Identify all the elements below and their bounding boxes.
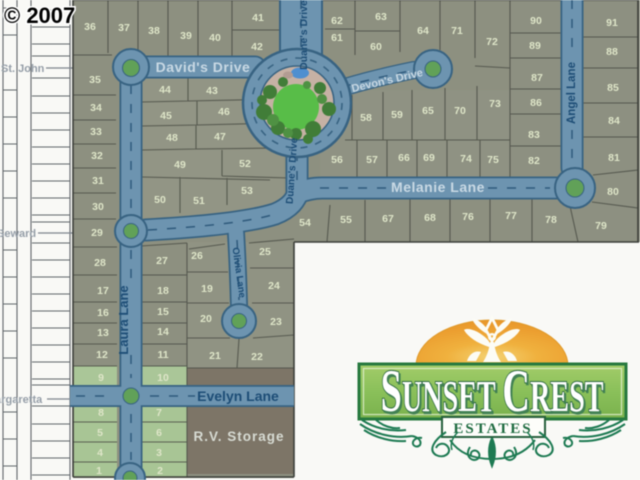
svg-text:30: 30 bbox=[92, 201, 104, 213]
svg-text:43: 43 bbox=[206, 85, 218, 97]
svg-text:79: 79 bbox=[595, 220, 607, 232]
svg-text:1: 1 bbox=[96, 465, 102, 477]
svg-text:28: 28 bbox=[94, 257, 106, 269]
svg-text:88: 88 bbox=[606, 46, 618, 58]
svg-text:21: 21 bbox=[209, 350, 221, 362]
svg-text:72: 72 bbox=[486, 36, 498, 48]
svg-text:77: 77 bbox=[505, 210, 517, 222]
svg-text:26: 26 bbox=[191, 250, 203, 262]
svg-text:70: 70 bbox=[454, 105, 466, 117]
svg-text:60: 60 bbox=[370, 41, 382, 53]
svg-text:81: 81 bbox=[608, 152, 620, 164]
svg-text:Angel Lane: Angel Lane bbox=[566, 62, 578, 124]
svg-text:17: 17 bbox=[97, 285, 109, 297]
svg-text:6: 6 bbox=[156, 427, 162, 439]
svg-text:91: 91 bbox=[606, 17, 618, 29]
svg-text:61: 61 bbox=[331, 32, 343, 44]
svg-text:89: 89 bbox=[529, 40, 541, 52]
svg-text:R.V. Storage: R.V. Storage bbox=[193, 429, 284, 444]
svg-text:55: 55 bbox=[340, 214, 352, 226]
svg-text:20: 20 bbox=[200, 313, 212, 325]
svg-text:27: 27 bbox=[156, 255, 168, 267]
svg-text:24: 24 bbox=[268, 280, 280, 292]
svg-text:9: 9 bbox=[98, 372, 104, 384]
svg-text:3: 3 bbox=[156, 447, 162, 459]
svg-text:75: 75 bbox=[487, 154, 499, 166]
svg-text:37: 37 bbox=[118, 22, 130, 34]
svg-text:13: 13 bbox=[97, 327, 109, 339]
svg-text:35: 35 bbox=[89, 74, 101, 86]
svg-text:ESTATES: ESTATES bbox=[453, 421, 532, 437]
svg-text:57: 57 bbox=[366, 154, 378, 166]
svg-text:Laura Lane: Laura Lane bbox=[116, 285, 131, 354]
svg-text:22: 22 bbox=[251, 351, 263, 363]
svg-text:16: 16 bbox=[97, 307, 109, 319]
svg-text:Duane's Drive: Duane's Drive bbox=[298, 0, 310, 70]
svg-text:48: 48 bbox=[166, 132, 178, 144]
svg-text:29: 29 bbox=[91, 227, 103, 239]
svg-text:8: 8 bbox=[98, 407, 104, 419]
svg-text:64: 64 bbox=[417, 25, 429, 37]
svg-text:54: 54 bbox=[299, 217, 311, 229]
svg-text:52: 52 bbox=[239, 158, 251, 170]
svg-text:78: 78 bbox=[545, 214, 557, 226]
svg-text:84: 84 bbox=[608, 115, 620, 127]
svg-text:59: 59 bbox=[391, 109, 403, 121]
svg-text:33: 33 bbox=[90, 126, 102, 138]
svg-text:74: 74 bbox=[460, 153, 472, 165]
svg-text:44: 44 bbox=[159, 84, 171, 96]
svg-text:© 2007: © 2007 bbox=[4, 3, 75, 28]
svg-text:80: 80 bbox=[607, 186, 619, 198]
svg-text:40: 40 bbox=[209, 32, 221, 44]
svg-text:39: 39 bbox=[180, 30, 192, 42]
svg-text:68: 68 bbox=[424, 212, 436, 224]
svg-text:58: 58 bbox=[360, 112, 372, 124]
svg-text:51: 51 bbox=[193, 195, 205, 207]
svg-text:87: 87 bbox=[531, 72, 543, 84]
svg-text:49: 49 bbox=[174, 159, 186, 171]
svg-text:25: 25 bbox=[259, 246, 271, 258]
svg-text:47: 47 bbox=[214, 131, 226, 143]
svg-text:12: 12 bbox=[96, 349, 108, 361]
svg-text:83: 83 bbox=[528, 129, 540, 141]
svg-text:Melanie Lane: Melanie Lane bbox=[391, 179, 485, 195]
svg-text:45: 45 bbox=[160, 110, 172, 122]
svg-text:Evelyn Lane: Evelyn Lane bbox=[197, 388, 279, 404]
svg-text:32: 32 bbox=[91, 150, 103, 162]
svg-text:31: 31 bbox=[92, 175, 104, 187]
svg-text:56: 56 bbox=[331, 154, 343, 166]
svg-text:86: 86 bbox=[530, 97, 542, 109]
svg-text:19: 19 bbox=[201, 283, 213, 295]
svg-text:36: 36 bbox=[84, 21, 96, 33]
svg-text:53: 53 bbox=[241, 185, 253, 197]
svg-text:10: 10 bbox=[157, 372, 169, 384]
svg-text:15: 15 bbox=[157, 306, 169, 318]
svg-text:14: 14 bbox=[157, 326, 169, 338]
svg-text:71: 71 bbox=[451, 25, 463, 37]
svg-text:67: 67 bbox=[382, 213, 394, 225]
svg-text:65: 65 bbox=[422, 105, 434, 117]
svg-text:5: 5 bbox=[97, 427, 103, 439]
svg-text:76: 76 bbox=[462, 211, 474, 223]
svg-text:63: 63 bbox=[375, 11, 387, 23]
svg-text:4: 4 bbox=[97, 447, 103, 459]
svg-text:41: 41 bbox=[252, 12, 264, 24]
svg-text:Margaretta: Margaretta bbox=[0, 394, 43, 406]
svg-text:11: 11 bbox=[157, 349, 168, 361]
svg-text:62: 62 bbox=[331, 15, 343, 27]
svg-text:73: 73 bbox=[489, 98, 501, 110]
svg-text:42: 42 bbox=[251, 41, 263, 53]
svg-text:90: 90 bbox=[530, 15, 542, 27]
svg-text:66: 66 bbox=[398, 152, 410, 164]
svg-text:David's Drive: David's Drive bbox=[156, 59, 251, 75]
svg-text:85: 85 bbox=[607, 82, 619, 94]
svg-text:18: 18 bbox=[157, 285, 169, 297]
svg-text:2: 2 bbox=[157, 465, 163, 477]
svg-text:Seward: Seward bbox=[0, 228, 36, 240]
svg-text:50: 50 bbox=[154, 194, 166, 206]
svg-text:38: 38 bbox=[148, 25, 160, 37]
svg-text:St. John: St. John bbox=[1, 63, 45, 75]
svg-text:34: 34 bbox=[90, 102, 102, 114]
svg-text:82: 82 bbox=[528, 155, 540, 167]
svg-text:7: 7 bbox=[156, 407, 162, 419]
svg-text:23: 23 bbox=[270, 316, 282, 328]
svg-text:69: 69 bbox=[423, 152, 435, 164]
svg-text:46: 46 bbox=[218, 106, 230, 118]
